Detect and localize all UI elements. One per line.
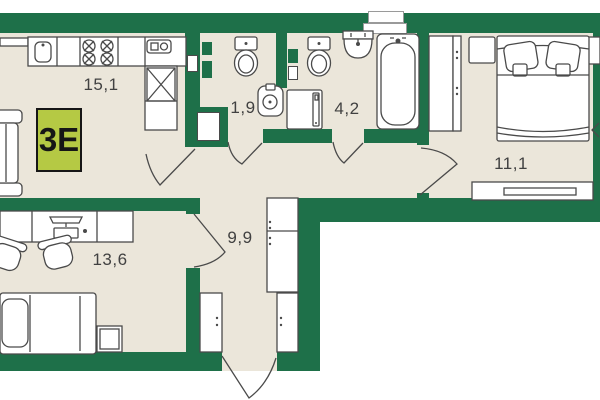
kitchen-door-gap [186,147,200,198]
floor-plan: 15,1 1,9 4,2 11,1 9,9 13,6 3E [0,0,600,400]
wall [364,129,417,143]
wall [186,268,200,358]
second-bedroom-floor [0,211,186,352]
wall [298,198,600,222]
wall [276,33,287,88]
wall [186,198,200,214]
room-area-label: 15,1 [83,75,118,95]
room-area-label: 4,2 [334,99,359,119]
vent-shaft [288,66,298,80]
corridor-floor [298,143,417,198]
bath-guest-door-gap [228,129,263,143]
vent-shaft [202,42,212,55]
room-area-label: 11,1 [494,154,528,174]
wall [0,198,200,211]
vent-shaft [202,61,212,78]
wall [417,33,429,145]
bath-main-door-gap [332,129,364,143]
vent-shaft [197,112,220,141]
unit-badge: 3E [36,108,82,172]
vent-chimney [363,23,407,34]
vent-chimney [368,11,404,23]
room-area-label: 1,9 [230,98,255,118]
room-door-gap [186,214,200,268]
kitchen-floor [0,33,186,198]
room-area-label: 13,6 [92,250,127,270]
room-area-label: 9,9 [227,228,252,248]
bedroom-door-gap [417,145,429,193]
wall [263,129,332,143]
vent-shaft [187,55,198,72]
vent-shaft [288,49,298,63]
wall [277,352,320,371]
wall [593,13,600,222]
wall [298,198,320,368]
entrance-threshold [222,352,277,371]
wall [0,13,600,33]
bathroom-guest-floor [276,88,287,129]
